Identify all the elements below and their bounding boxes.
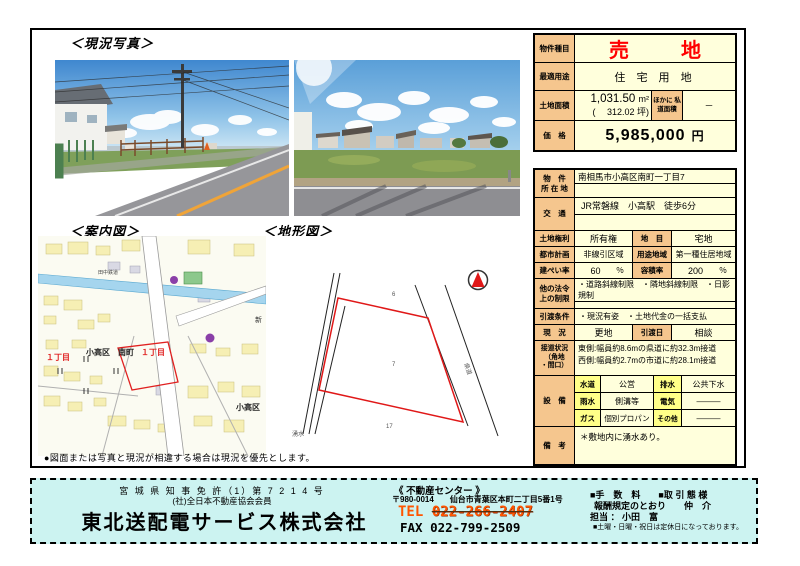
facility-row-water: 水道 公営 排水 公共下水 (575, 376, 735, 393)
map-label: 田中鉄道 (98, 269, 118, 276)
map-label: １丁目 (141, 348, 165, 357)
land-category-value: 宅地 (672, 231, 735, 246)
lot-number: 17 (386, 424, 393, 430)
use-label: 最適用途 (535, 63, 575, 90)
site-photo-2 (294, 60, 520, 216)
far-value: 200 (672, 266, 719, 276)
law-label: 他の法令 上の制限 (535, 279, 575, 308)
access-value-2 (575, 215, 735, 231)
area-label: 土地面積 (535, 91, 575, 120)
table-row-access: 交 通 JR常磐線 小高駅 徒歩6分 (535, 198, 735, 231)
facility-row-rain: 雨水 側溝等 電気 ――― (575, 393, 735, 410)
map-school-building (184, 272, 202, 284)
city-plan-value: 非線引区域 (575, 247, 632, 262)
map-label: 小高区 (235, 402, 260, 412)
law-value-2 (575, 302, 735, 308)
area-unit: m² (639, 94, 650, 104)
map-temple-marker-icon (206, 334, 215, 343)
access-label: 交 通 (535, 198, 575, 230)
price-value: 5,985,000 (605, 127, 685, 145)
handover-date-value: 相談 (672, 325, 735, 340)
elec-label: 電気 (653, 393, 682, 409)
type-label: 物件種目 (535, 35, 575, 62)
fax-line: FAX 022-799-2509 (400, 520, 520, 535)
facilities-label: 設 備 (535, 376, 575, 426)
location-label: 物 件 所 在 地 (535, 170, 575, 197)
remarks-value: ＊敷地内に湧水あり。 (575, 427, 735, 464)
drain-value: 公共下水 (682, 376, 735, 392)
water-value: 公営 (601, 376, 653, 392)
far-label: 容積率 (632, 263, 672, 278)
company-name: 東北送配電サービス株式会社 (52, 506, 397, 535)
table-row-type: 物件種目 売 地 (535, 35, 735, 63)
price-value-cell: 5,985,000円 (575, 121, 735, 150)
use-value: 住 宅 用 地 (575, 63, 735, 90)
law-value: ・道路斜線制限 ・隣地斜線制限 ・日影規制 (575, 279, 735, 302)
property-detail-table: 物 件 所 在 地 南相馬市小高区南町一丁目7 交 通 JR常磐線 小高駅 徒歩… (533, 168, 737, 466)
other-value: ――― (682, 410, 735, 426)
fax-number: 022-799-2509 (430, 520, 520, 535)
land-category-label: 地 目 (632, 231, 672, 246)
road-contact-label: 接道状況 （角地 ・間口） (535, 341, 575, 375)
map-marker-icon (170, 276, 178, 284)
handover-date-label: 引渡日 (632, 325, 672, 340)
location-value-2 (575, 184, 735, 197)
water-label: 湧水 (292, 430, 304, 438)
table-row-price: 価 格 5,985,000円 (535, 121, 735, 150)
private-road-value: － (683, 91, 735, 120)
table-row-use: 最適用途 住 宅 用 地 (535, 63, 735, 91)
site-photo-1 (55, 60, 289, 216)
tel-number: 022-266-2407 (432, 504, 533, 520)
far-unit: ％ (719, 265, 735, 276)
company-footer: 宮 城 県 知 事 免 許（1）第 7 2 1 4 号 (社)全日本不動産協会会… (30, 478, 758, 544)
telephone-line: TEL 022-266-2407 (398, 504, 533, 520)
other-label: その他 (653, 410, 682, 426)
map-label: 小高区 南町 (85, 347, 134, 357)
elec-value: ――― (682, 393, 735, 409)
gas-label: ガス (575, 410, 601, 426)
location-value: 南相馬市小高区南町一丁目7 (575, 170, 735, 184)
land-right-value: 所有権 (575, 231, 632, 246)
map-label: １丁目 (46, 353, 70, 362)
handover-cond-label: 引渡条件 (535, 309, 575, 324)
zoning-value: 第一種住居地域 (672, 247, 735, 262)
remarks-label: 備 考 (535, 427, 575, 464)
photo-section-label: ＜現況写真＞ (70, 33, 154, 52)
table-row-law: 他の法令 上の制限 ・道路斜線制限 ・隣地斜線制限 ・日影規制 (535, 279, 735, 309)
property-summary-table: 物件種目 売 地 最適用途 住 宅 用 地 土地面積 1,031.50 m² (… (533, 33, 737, 152)
table-row-remarks: 備 考 ＊敷地内に湧水あり。 (535, 427, 735, 464)
gas-value: 個別プロパン (601, 410, 653, 426)
road-contact-line1: 東側:幅員約8.6mの県道に約32.3m接道 (578, 343, 735, 355)
plot-map-image: 6 7 17 県道 湧水 (272, 236, 522, 458)
guide-map: 田中鉄道 新 １丁目 小高区 南町 １丁目 小高区 (38, 236, 266, 456)
current-label: 現 況 (535, 325, 575, 340)
rain-label: 雨水 (575, 393, 601, 409)
holiday-note: ■土曜・日曜・祝日は定休日になっております。 (593, 522, 743, 532)
area-tsubo: ( 312.02 坪) (575, 105, 649, 118)
zoning-label: 用途地域 (632, 247, 672, 262)
bcr-value: 60 (575, 266, 616, 276)
frame-note: ●図面または写真と現況が相違する場合は現況を優先とします。 (44, 451, 315, 464)
map-label: 新 (255, 315, 262, 324)
table-row-land-right: 土地権利 所有権 地 目 宅地 (535, 231, 735, 247)
fax-label: FAX (400, 520, 423, 535)
bcr-label: 建ぺい率 (535, 263, 575, 278)
facility-row-gas: ガス 個別プロパン その他 ――― (575, 410, 735, 426)
current-value: 更地 (575, 325, 632, 340)
table-row-current: 現 況 更地 引渡日 相談 (535, 325, 735, 341)
price-label: 価 格 (535, 121, 575, 150)
guide-map-image: 田中鉄道 新 １丁目 小高区 南町 １丁目 小高区 (38, 236, 266, 456)
table-row-bcr-far: 建ぺい率 60％ 容積率 200％ (535, 263, 735, 279)
plot-map: 6 7 17 県道 湧水 (272, 236, 522, 458)
table-row-facilities: 設 備 水道 公営 排水 公共下水 雨水 側溝等 電気 ――― ガス 個別プロパ… (535, 376, 735, 427)
site-photo-1-image (55, 60, 289, 216)
price-unit: 円 (692, 127, 705, 144)
rain-value: 側溝等 (601, 393, 653, 409)
water-label: 水道 (575, 376, 601, 392)
tel-label: TEL (398, 504, 423, 520)
land-right-label: 土地権利 (535, 231, 575, 246)
type-value: 売 地 (575, 35, 735, 62)
area-value: 1,031.50 (591, 93, 636, 105)
table-row-handover-cond: 引渡条件 ・現況有姿 ・土地代金の一括支払 (535, 309, 735, 325)
bcr-unit: ％ (616, 265, 632, 276)
property-flyer-page: ＜現況写真＞ (0, 0, 800, 566)
table-row-area: 土地面積 1,031.50 m² ( 312.02 坪) ほかに 私道面積 － (535, 91, 735, 121)
site-photo-2-image (294, 60, 520, 216)
access-value: JR常磐線 小高駅 徒歩6分 (575, 198, 735, 215)
area-value-cell: 1,031.50 m² ( 312.02 坪) (575, 91, 651, 120)
city-plan-label: 都市計画 (535, 247, 575, 262)
guard-post (508, 170, 511, 182)
table-row-location: 物 件 所 在 地 南相馬市小高区南町一丁目7 (535, 170, 735, 198)
road-contact-line2: 西側:幅員約2.7mの市道に約28.1m接道 (578, 355, 735, 367)
drain-label: 排水 (653, 376, 682, 392)
table-row-road-contact: 接道状況 （角地 ・間口） 東側:幅員約8.6mの県道に約32.3m接道 西側:… (535, 341, 735, 376)
handover-cond-value: ・現況有姿 ・土地代金の一括支払 (575, 309, 735, 324)
table-row-city-plan: 都市計画 非線引区域 用途地域 第一種住居地域 (535, 247, 735, 263)
private-road-label: ほかに 私道面積 (651, 91, 683, 120)
compass-icon (469, 271, 488, 290)
